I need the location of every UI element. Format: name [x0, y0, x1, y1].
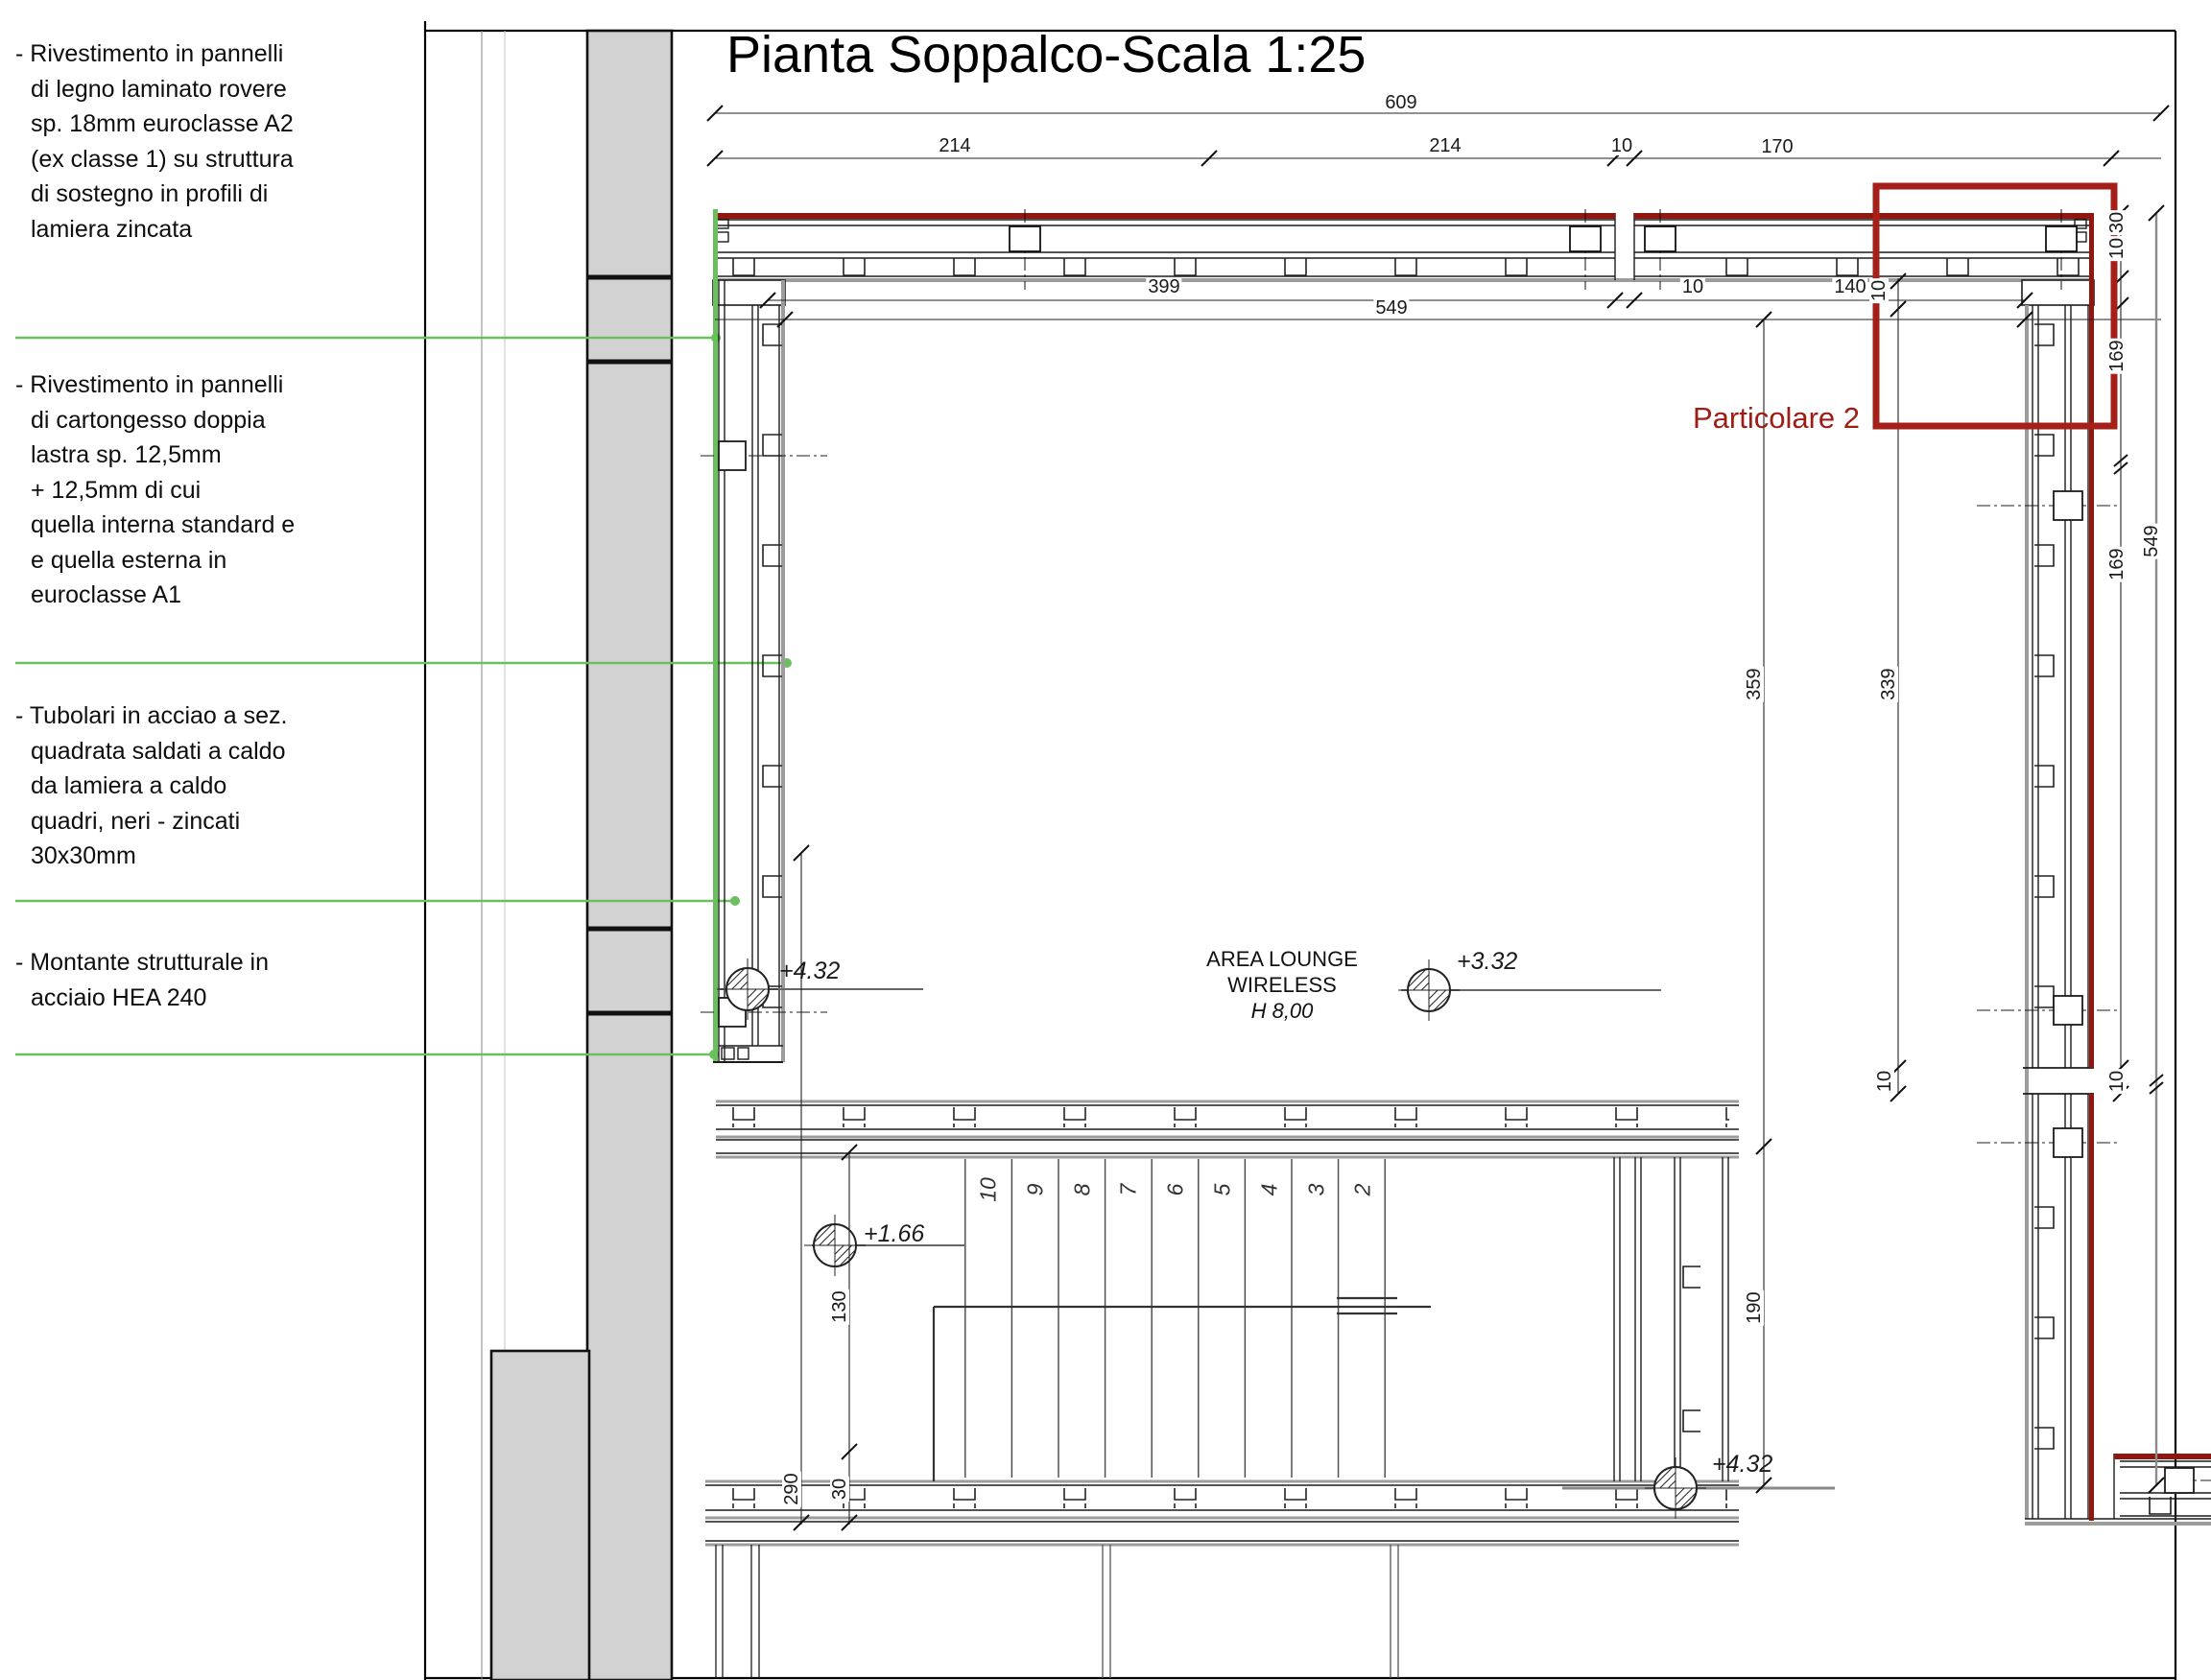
dim-label: 549 — [1373, 298, 1409, 318]
level-label: +4.32 — [779, 959, 840, 983]
room-name-line1: AREA LOUNGE — [1206, 946, 1358, 972]
room-height: H 8,00 — [1206, 998, 1358, 1024]
dim-label: 10 — [2107, 1069, 2127, 1094]
lower-flight-walls — [716, 1545, 1398, 1678]
stair-number: 9 — [1024, 1182, 1046, 1198]
level-label: +4.32 — [1712, 1453, 1772, 1477]
dim-label: 169 — [2107, 546, 2127, 581]
dim-label: 214 — [1427, 136, 1462, 155]
dim-label: 170 — [1759, 137, 1795, 156]
dim-label: 10 — [2107, 236, 2127, 261]
room-label: AREA LOUNGE WIRELESS H 8,00 — [1206, 946, 1358, 1024]
level-label: +3.32 — [1457, 950, 1517, 974]
stair-number: 8 — [1071, 1182, 1093, 1198]
drawing-sheet: Pianta Soppalco-Scala 1:25 - Rivestiment… — [0, 0, 2211, 1680]
dim-label: 609 — [1383, 93, 1418, 112]
dimension-lines — [707, 106, 2169, 1530]
dim-label: 30 — [2107, 210, 2127, 235]
dim-label: 169 — [2107, 338, 2127, 373]
detail-callout-label: Particolare 2 — [1693, 401, 1860, 436]
stair-number: 2 — [1352, 1182, 1374, 1198]
dim-label: 10 — [1680, 277, 1705, 296]
dim-label: 549 — [2142, 523, 2161, 558]
stair-shaft-walls — [1614, 1157, 1728, 1481]
annotation-block: - Montante strutturale inacciaio HEA 240 — [15, 945, 438, 1015]
stair-lower-wall — [705, 1481, 1739, 1545]
stair-number: 3 — [1305, 1182, 1327, 1198]
dim-label: 10 — [1869, 278, 1889, 303]
stair-upper-wall — [716, 1101, 1739, 1157]
annotation-block: - Tubolari in acciao a sez.quadrata sald… — [15, 698, 438, 874]
level-label: +1.66 — [864, 1222, 924, 1246]
stair-number: 5 — [1212, 1182, 1234, 1198]
dim-label: 10 — [1609, 136, 1634, 155]
stair-number: 10 — [978, 1175, 1000, 1204]
dim-label: 30 — [830, 1477, 849, 1502]
stair-treads — [934, 1159, 1431, 1481]
annotation-block: - Rivestimento in pannellidi cartongesso… — [15, 367, 438, 613]
existing-wall-column — [491, 31, 672, 1680]
dim-label: 140 — [1832, 277, 1867, 296]
dim-label: 339 — [1879, 666, 1898, 701]
dim-label: 10 — [1875, 1069, 1894, 1094]
dim-label: 130 — [830, 1289, 849, 1324]
stair-number: 4 — [1258, 1182, 1280, 1198]
dim-label: 190 — [1745, 1290, 1764, 1325]
dim-label: 290 — [782, 1471, 801, 1506]
dim-label: 359 — [1745, 666, 1764, 701]
annotation-block: - Rivestimento in pannellidi legno lamin… — [15, 36, 438, 247]
page-title: Pianta Soppalco-Scala 1:25 — [726, 25, 1366, 84]
bottom-right-wall — [2114, 1454, 2211, 1519]
detail-callout-box — [1876, 186, 2114, 426]
dim-label: 399 — [1146, 277, 1181, 296]
dim-label: 214 — [937, 136, 972, 155]
stair-number: 6 — [1165, 1182, 1187, 1198]
room-name-line2: WIRELESS — [1206, 972, 1358, 998]
stair-number: 7 — [1118, 1182, 1140, 1198]
